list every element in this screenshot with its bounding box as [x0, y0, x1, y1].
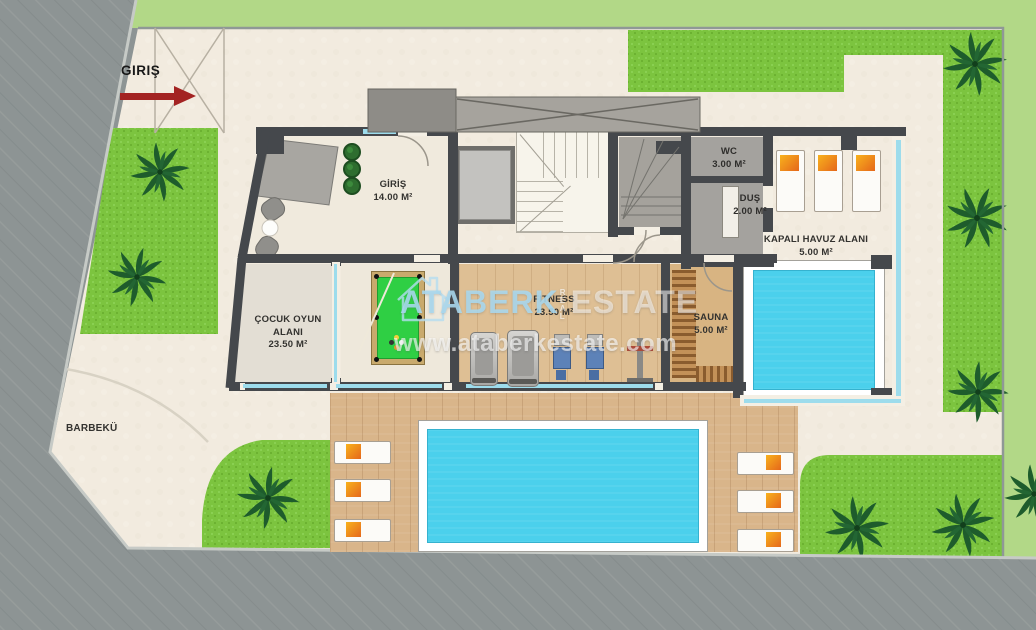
treadmill [507, 330, 539, 387]
sun-lounger [737, 490, 794, 513]
elevator [455, 146, 515, 224]
sauna-bench-left [672, 270, 696, 378]
outer-green-strip-right [1002, 28, 1036, 568]
stair-treads-lower [517, 178, 563, 232]
sun-lounger [334, 441, 391, 464]
outer-green-strip-top [130, 0, 1036, 28]
entrance-gate [155, 28, 224, 133]
billiard-table [372, 272, 424, 364]
lobby-chairs [252, 194, 287, 262]
room-label-cocuk-oyun: ÇOCUK OYUN ALANI 23.50 M² [255, 314, 322, 352]
indoor-pool [744, 261, 884, 399]
room-label-fitness: FITNESS 23.50 M² [533, 294, 575, 319]
lobby-table [262, 220, 278, 236]
room-label-giris: GİRİŞ 14.00 M² [373, 179, 412, 204]
sun-lounger [737, 452, 794, 475]
bushes [344, 144, 360, 194]
angled-wall-upper [242, 131, 266, 258]
entry-ramp [368, 89, 700, 132]
room-label-dus: DUŞ 2.00 M² [733, 193, 767, 218]
outdoor-pool-water [427, 429, 699, 543]
floor-plan: GIRIŞ GİRİŞ 14.00 M² WC 3.00 M² DUŞ 2.00… [0, 0, 1036, 630]
angled-wall-lower [230, 258, 242, 388]
exercise-bike [584, 334, 604, 380]
room-label-sauna: SAUNA 5.00 M² [694, 312, 729, 337]
room-label-kapali-havuz: KAPALI HAVUZ ALANI 5.00 M² [764, 234, 868, 259]
stair-treads-upper [543, 132, 612, 178]
secondary-staircase [619, 137, 683, 228]
room-label-wc: WC 3.00 M² [712, 146, 746, 171]
entrance-gray-area [257, 139, 338, 205]
sun-lounger [776, 150, 805, 212]
sun-lounger [852, 150, 881, 212]
outdoor-pool [419, 421, 707, 551]
entrance-arrow-icon [120, 86, 200, 107]
sun-lounger [334, 479, 391, 502]
sun-lounger [814, 150, 843, 212]
entrance-hall-floor [244, 137, 448, 255]
weight-machine [627, 338, 653, 382]
sauna-bench-bottom [696, 366, 734, 382]
treadmill [470, 332, 498, 386]
barbecue-label: BARBEKÜ [66, 422, 117, 435]
sun-lounger [737, 529, 794, 552]
sun-lounger [334, 519, 391, 542]
exercise-bike [551, 334, 571, 380]
site-entrance-label: GIRIŞ [121, 63, 160, 78]
indoor-pool-water [753, 270, 875, 390]
